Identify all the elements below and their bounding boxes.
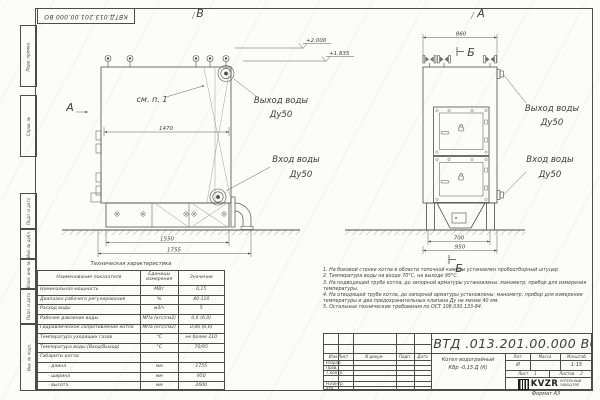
outlet-label-front: Выход воды — [525, 104, 579, 114]
spec-cell: Рабочее давление воды — [38, 315, 140, 324]
note-3: 3. На подводящей трубе котла, до запорно… — [323, 281, 595, 293]
kvzr-logo: KVZR КОТЕЛЬНЫЙ ЗАВОД РЭП — [518, 379, 581, 390]
spec-cell: 70/95 — [178, 344, 225, 353]
outlet-label-side: Выход воды — [254, 96, 308, 106]
spec-row: Габариты котла — [38, 352, 224, 362]
inlet-label-side-dn: Ду50 — [289, 170, 313, 180]
spec-cell: Расход воды — [38, 305, 140, 314]
kvzr-logo-name: KVZR — [531, 379, 558, 389]
dim-1755: 1755 — [167, 248, 181, 254]
spec-row: Гидравлическое сопротивление котлаМПа (к… — [38, 324, 224, 334]
spec-cell: Диапазон рабочего регулирования — [38, 296, 140, 305]
outlet-flange-front — [497, 70, 504, 79]
tb-line — [396, 334, 397, 391]
padlock-icon — [459, 125, 463, 131]
spec-col-units: Единицы измерения — [140, 271, 178, 285]
spec-cell: Габариты котла — [38, 353, 140, 362]
kvzr-logo-subtitle: КОТЕЛЬНЫЙ ЗАВОД РЭП — [560, 380, 581, 388]
lit-value: И — [506, 360, 530, 371]
dim-950: 950 — [455, 245, 466, 251]
kvzr-logo-sub2: ЗАВОД РЭП — [560, 384, 581, 388]
spec-row: Температура воды (Вход/Выход)°С70/95 — [38, 343, 224, 353]
dim-1550: 1550 — [160, 237, 174, 243]
spec-cell: - ширина — [38, 373, 140, 382]
outlet-flange-side — [218, 66, 234, 82]
spec-row: - ширинамм950 — [38, 372, 224, 382]
sheet-label: Лист — [518, 371, 528, 376]
padlock-icon — [459, 174, 463, 180]
spec-cell: мм — [140, 363, 178, 372]
spec-cell: МВт — [140, 286, 178, 295]
lower-door — [434, 157, 490, 203]
spec-cell: °С — [140, 334, 178, 343]
sheets-label: Листов — [559, 371, 574, 376]
note-2: 2. Температура воды на входе 70°С, на вы… — [323, 274, 595, 280]
spec-cell: мм — [140, 373, 178, 382]
title-block: КВТД .013.201.00.000 ВО Изм.Лист N докум… — [323, 333, 592, 390]
boiler-front-view — [423, 56, 504, 231]
product-name-line1: Котел водогрейный — [442, 357, 495, 363]
tb-col-data: Дата — [414, 353, 431, 360]
base-bolts — [115, 212, 226, 216]
spec-cell: 5 — [178, 305, 225, 314]
dimensions — [98, 34, 497, 257]
spec-cell: 0,06 (0,6) — [178, 325, 225, 334]
dim-860: 860 — [456, 32, 467, 38]
outlet-label-side-dn: Ду50 — [269, 110, 293, 120]
view-label-a: А — [476, 7, 485, 20]
spec-cell: Номинальная мощность — [38, 286, 140, 295]
section-label-b-top: Б — [467, 46, 475, 59]
spec-cell: не более 210 — [178, 334, 225, 343]
scale-value: 1:15 — [560, 360, 593, 371]
spec-cell: % — [140, 296, 178, 305]
spec-cell: Температура воды (Вход/Выход) — [38, 344, 140, 353]
product-name-cell: Котел водогрейный КВр -0,15 Д (К) — [431, 353, 506, 391]
spec-cell: Температура уходящих газов — [38, 334, 140, 343]
spec-col-name: Наименование показателя — [38, 271, 140, 285]
tb-line — [324, 375, 431, 376]
view-label-v: В — [196, 7, 204, 20]
spec-cell: - длина — [38, 363, 140, 372]
elevation-mark-2: +1.835 — [329, 51, 350, 57]
inlet-label-side: Вход воды — [272, 155, 320, 165]
mass-value — [530, 360, 560, 371]
spec-cell: 40-110 — [178, 296, 225, 305]
spec-cell: м3/ч — [140, 305, 178, 314]
view-arrow-label-a: А — [65, 101, 74, 114]
sheet-cell: Лист 1 — [506, 370, 549, 377]
spec-cell: 0,6 (6,0) — [178, 315, 225, 324]
boiler-side-view — [91, 56, 253, 230]
outlet-label-front-dn: Ду50 — [540, 118, 564, 128]
spec-row: - длинамм1755 — [38, 362, 224, 372]
spec-row: Номинальная мощностьМВт0,15 — [38, 285, 224, 295]
spec-col-value: Значение — [178, 271, 225, 285]
spec-cell: °С — [140, 344, 178, 353]
spec-col-units-2: измерения — [146, 278, 172, 283]
technical-notes: 1. На боковой стенке котла в области топ… — [323, 268, 595, 311]
leader-lines — [76, 12, 526, 264]
sheets-value: 2 — [580, 371, 583, 376]
tb-row-utv: Утв. — [324, 386, 353, 391]
tb-row-tkontr: Т.контр. — [324, 370, 353, 375]
spec-row: Диапазон рабочего регулирования%40-110 — [38, 295, 224, 305]
spec-cell: 0,15 — [178, 286, 225, 295]
spec-header-row: Наименование показателя Единицы измерени… — [38, 271, 224, 285]
drawing-sheet: КВТД.013.201.00.000 ВО Перв. примен. Спр… — [0, 0, 600, 400]
top-fittings-front — [423, 56, 497, 68]
doc-number: КВТД .013.201.00.000 ВО — [431, 334, 593, 353]
note-4: 4. На отводящей трубе котла, до запорной… — [323, 293, 595, 305]
elbow-pipe — [231, 197, 253, 230]
tb-line — [414, 334, 415, 391]
top-fittings-side — [105, 56, 229, 68]
note-5: 5. Остальные технические требования по О… — [323, 305, 595, 311]
sheet-value: 1 — [534, 371, 537, 376]
format-note: Формат А3 — [500, 391, 592, 397]
spec-cell: 950 — [178, 373, 224, 382]
kvzr-logo-icon — [518, 379, 529, 390]
spec-cell: мм — [140, 382, 178, 391]
spec-table: Наименование показателя Единицы измерени… — [37, 270, 225, 390]
spec-cell: 1755 — [178, 363, 224, 372]
spec-row: - высотамм2600 — [38, 381, 224, 391]
tb-col-podp: Подп. — [396, 353, 414, 360]
inlet-label-front: Вход воды — [526, 155, 574, 165]
spec-row: Температура уходящих газов°Сне более 210 — [38, 333, 224, 343]
dim-1470: 1470 — [159, 126, 173, 132]
tb-col-docnum: N докум. — [353, 353, 396, 360]
product-name-line2: КВр -0,15 Д (К) — [448, 365, 487, 371]
spec-row: Расход водым3/ч5 — [38, 304, 224, 314]
spec-cell: 2600 — [178, 382, 224, 391]
spec-table-title: Техническая характеристика — [37, 261, 225, 267]
sheets-cell: Листов 2 — [549, 370, 593, 377]
ground-line — [62, 230, 525, 235]
elevation-mark-1: +2.000 — [306, 38, 327, 44]
logo-cell: KVZR КОТЕЛЬНЫЙ ЗАВОД РЭП — [506, 377, 593, 391]
spec-cell: Гидравлическое сопротивление котла — [38, 325, 140, 334]
spec-cell — [140, 353, 178, 362]
dim-700: 700 — [454, 236, 465, 242]
inlet-flange-front — [497, 191, 504, 200]
spec-cell: МПа (кгс/см2) — [140, 325, 178, 334]
spec-row: Рабочее давление водыМПа (кгс/см2)0,6 (6… — [38, 314, 224, 324]
inlet-label-front-dn: Ду50 — [538, 170, 562, 180]
see-item-note: см. п. 1 — [137, 95, 168, 104]
spec-cell: - высота — [38, 382, 140, 391]
spec-cell — [178, 353, 225, 362]
upper-door — [434, 107, 490, 156]
spec-cell: МПа (кгс/см2) — [140, 315, 178, 324]
note-1: 1. На боковой стенке котла в области топ… — [323, 268, 595, 274]
tb-line — [353, 334, 354, 391]
